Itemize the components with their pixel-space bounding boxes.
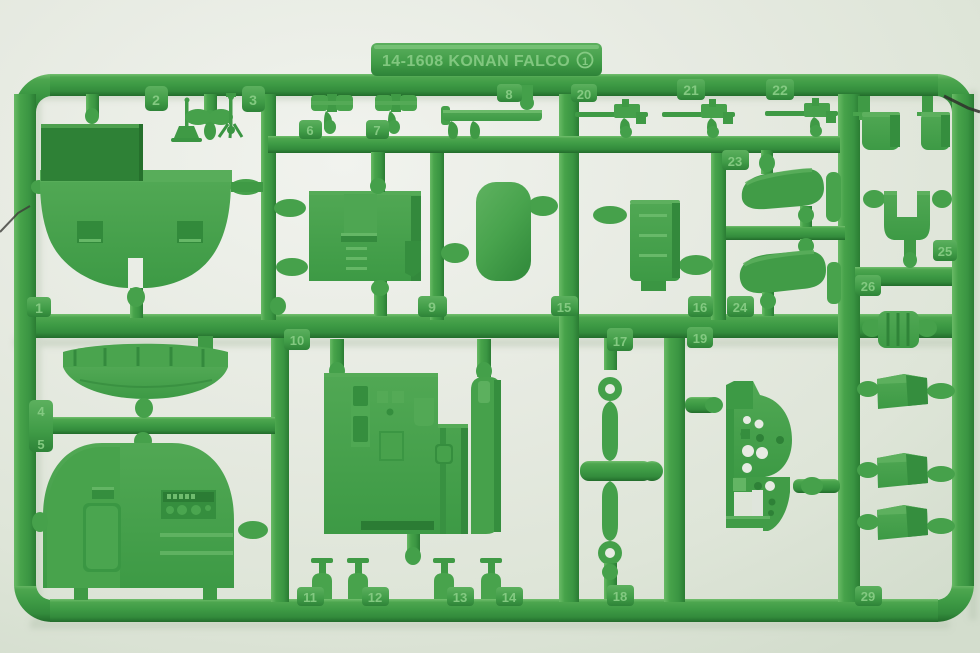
svg-text:7: 7 [373,123,380,138]
svg-text:11: 11 [303,590,317,605]
svg-text:20: 20 [577,87,591,102]
svg-text:29: 29 [861,589,875,604]
svg-text:26: 26 [861,279,875,294]
svg-text:12: 12 [368,590,382,605]
svg-text:21: 21 [683,82,699,98]
svg-text:23: 23 [728,154,742,169]
svg-text:22: 22 [772,82,788,98]
svg-text:5: 5 [37,437,44,452]
svg-text:10: 10 [290,333,304,348]
svg-text:14: 14 [502,590,517,605]
svg-text:18: 18 [613,589,627,604]
svg-text:14-1608 KONAN FALCO: 14-1608 KONAN FALCO [382,53,570,70]
svg-text:3: 3 [249,92,257,108]
svg-text:24: 24 [733,300,748,315]
svg-text:1: 1 [582,56,588,68]
svg-text:4: 4 [37,404,45,419]
svg-text:1: 1 [35,300,43,316]
svg-text:25: 25 [938,244,952,259]
svg-text:19: 19 [693,331,707,346]
svg-text:15: 15 [557,300,571,315]
svg-text:8: 8 [505,87,512,102]
svg-text:9: 9 [428,299,436,315]
svg-text:16: 16 [693,300,707,315]
svg-text:2: 2 [152,92,160,108]
svg-text:13: 13 [453,590,467,605]
svg-text:6: 6 [306,123,313,138]
svg-text:17: 17 [613,334,627,349]
